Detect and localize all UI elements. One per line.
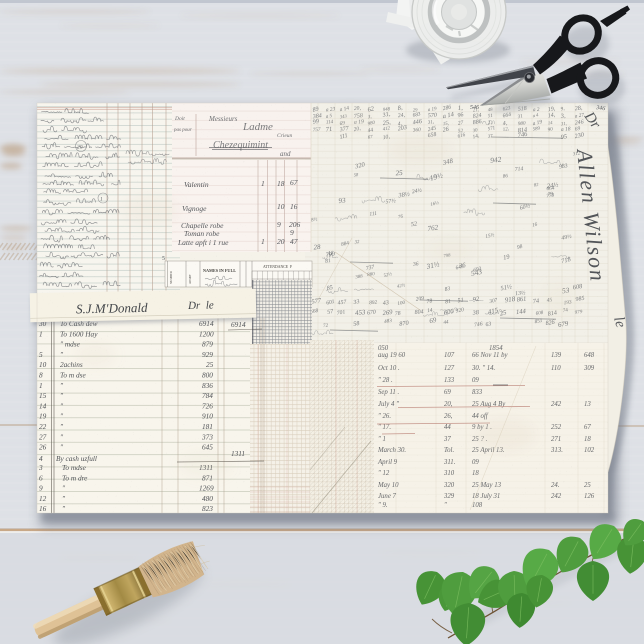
svg-text:Oct 10 .: Oct 10 . (378, 365, 400, 372)
svg-text:664: 664 (546, 185, 555, 192)
svg-text:and: and (280, 150, 291, 158)
svg-text:63: 63 (485, 321, 492, 328)
svg-text:9: 9 (290, 228, 294, 237)
svg-text:aug 19 60: aug 19 60 (378, 352, 406, 359)
svg-text:24,: 24, (398, 112, 406, 119)
svg-text:″ 28 .: ″ 28 . (378, 377, 393, 384)
svg-text:47: 47 (290, 237, 298, 246)
svg-text:″ 9.: ″ 9. (378, 502, 388, 509)
svg-text:To m dre: To m dre (62, 473, 88, 482)
svg-text:″ 12: ″ 12 (378, 470, 390, 477)
svg-text:313.: 313. (550, 447, 563, 454)
svg-text:a 2: a 2 (533, 107, 540, 114)
svg-text:3: 3 (38, 463, 43, 472)
svg-text:April 9: April 9 (377, 459, 398, 466)
svg-text:6: 6 (39, 473, 43, 482)
svg-text:25: 25 (395, 169, 403, 178)
svg-text:Sep 11 .: Sep 11 . (378, 389, 400, 396)
svg-text:329: 329 (443, 493, 455, 500)
svg-text:1269: 1269 (199, 484, 214, 493)
svg-text:44 off: 44 off (472, 413, 489, 420)
svg-text:1311: 1311 (231, 449, 245, 458)
svg-text:26: 26 (39, 443, 47, 452)
svg-text:To mdse: To mdse (62, 463, 87, 472)
svg-text:726: 726 (202, 401, 213, 410)
svg-text:18: 18 (277, 179, 285, 188)
svg-text:19: 19 (39, 412, 47, 421)
svg-text:Tol.: Tol. (444, 447, 454, 454)
svg-text:5: 5 (39, 350, 43, 359)
svg-text:577: 577 (311, 297, 322, 305)
svg-text:645: 645 (202, 443, 213, 452)
svg-text:20: 20 (77, 145, 83, 151)
svg-text:″ 17.: ″ 17. (378, 424, 391, 431)
svg-text:762: 762 (427, 223, 439, 232)
svg-text:51: 51 (488, 114, 493, 119)
svg-text:5: 5 (162, 256, 165, 262)
svg-text:Ladme: Ladme (242, 121, 273, 133)
svg-text:126: 126 (584, 493, 595, 500)
svg-text:95: 95 (560, 133, 567, 141)
svg-text:1: 1 (261, 179, 265, 188)
svg-text:27: 27 (39, 432, 47, 441)
svg-text:Messieurs: Messieurs (208, 115, 238, 123)
svg-text:″: ″ (444, 502, 447, 509)
svg-text:″ mdse: ″ mdse (60, 340, 81, 349)
svg-text:44: 44 (444, 424, 451, 431)
svg-text:12,: 12, (502, 127, 509, 133)
svg-text:26,: 26, (444, 413, 453, 420)
svg-text:870: 870 (399, 320, 410, 328)
svg-text:942: 942 (490, 155, 502, 165)
svg-text:1: 1 (100, 197, 103, 203)
svg-text:102: 102 (584, 447, 595, 454)
svg-text:Valentin: Valentin (184, 180, 209, 189)
svg-text:28,: 28, (574, 105, 583, 112)
svg-text:ATTENDANCE F: ATTENDANCE F (263, 265, 292, 269)
svg-text:9: 9 (277, 220, 281, 229)
svg-text:85: 85 (326, 285, 333, 292)
svg-text:16: 16 (39, 504, 47, 513)
svg-text:74: 74 (533, 297, 540, 305)
svg-text:July 4 ″: July 4 ″ (378, 401, 399, 408)
svg-text:8: 8 (39, 371, 43, 380)
svg-text:648: 648 (584, 352, 595, 359)
svg-text:24.: 24. (551, 482, 560, 489)
svg-text:929: 929 (202, 350, 213, 359)
svg-text:108: 108 (472, 502, 483, 509)
svg-text:310: 310 (443, 470, 455, 477)
svg-text:111: 111 (369, 211, 377, 218)
svg-text:28: 28 (313, 244, 321, 252)
svg-text:30. ″ 14.: 30. ″ 14. (471, 365, 496, 372)
svg-text:1: 1 (39, 381, 43, 390)
svg-text:16: 16 (290, 202, 298, 211)
svg-text:110: 110 (551, 365, 561, 372)
svg-text:S.J.M′Donald: S.J.M′Donald (76, 300, 148, 317)
svg-text:pas pour: pas pour (173, 128, 192, 133)
svg-text:31,: 31, (428, 119, 435, 126)
svg-text:181: 181 (202, 422, 213, 431)
svg-text:242: 242 (551, 401, 562, 408)
svg-text:To m dse: To m dse (60, 371, 86, 380)
svg-text:10: 10 (39, 360, 47, 369)
svg-text:714: 714 (515, 166, 524, 173)
svg-text:78: 78 (395, 311, 401, 318)
svg-text:15: 15 (39, 391, 47, 400)
svg-text:320: 320 (443, 482, 455, 489)
svg-text:1854: 1854 (489, 345, 503, 352)
svg-text:To 1600 Hay: To 1600 Hay (60, 329, 98, 338)
svg-text:May 10: May 10 (377, 482, 399, 489)
svg-text:836: 836 (202, 381, 213, 390)
svg-text:a 18: a 18 (561, 126, 571, 133)
svg-text:57½: 57½ (385, 197, 397, 205)
svg-text:570: 570 (428, 113, 437, 120)
svg-text:″ 26.: ″ 26. (378, 413, 391, 420)
svg-text:879: 879 (202, 340, 213, 349)
svg-text:252: 252 (551, 424, 562, 431)
svg-text:NAMES IN FULL: NAMES IN FULL (203, 268, 236, 273)
svg-text:373: 373 (201, 432, 213, 441)
svg-text:892: 892 (369, 299, 378, 306)
svg-text:Dr le: Dr le (187, 299, 214, 312)
svg-text:979: 979 (574, 309, 583, 316)
svg-text:309: 309 (583, 365, 595, 372)
svg-text:861: 861 (516, 295, 526, 303)
svg-text:1200: 1200 (199, 329, 214, 338)
svg-text:″ 1: ″ 1 (378, 436, 386, 443)
svg-text:43: 43 (383, 300, 390, 307)
svg-text:09: 09 (472, 377, 479, 384)
svg-text:25: 25 (584, 482, 591, 489)
svg-text:20: 20 (277, 237, 285, 246)
svg-text:242: 242 (551, 493, 562, 500)
svg-text:757: 757 (313, 127, 322, 134)
svg-text:March 30.: March 30. (377, 447, 406, 454)
svg-text:271: 271 (551, 436, 561, 443)
svg-text:269: 269 (382, 309, 393, 317)
svg-text:107: 107 (444, 352, 455, 359)
svg-text:209: 209 (415, 296, 424, 303)
svg-text:Toman robe: Toman robe (184, 229, 220, 238)
svg-text:69: 69 (444, 389, 451, 396)
svg-text:670: 670 (367, 310, 377, 317)
svg-text:14: 14 (427, 308, 433, 314)
svg-text:12: 12 (39, 494, 47, 503)
svg-text:By cash uzfull: By cash uzfull (56, 454, 97, 463)
svg-text:823: 823 (202, 504, 213, 513)
svg-text:25 May 13: 25 May 13 (472, 482, 502, 489)
svg-text:ADMIT: ADMIT (188, 274, 192, 284)
svg-text:37: 37 (443, 436, 451, 443)
svg-text:66 Nov 11 by: 66 Nov 11 by (472, 352, 509, 359)
svg-text:4: 4 (39, 454, 43, 463)
svg-text:52: 52 (411, 221, 418, 228)
svg-text:833: 833 (472, 389, 483, 396)
svg-text:18: 18 (584, 436, 591, 443)
svg-text:910: 910 (202, 412, 213, 421)
svg-text:13: 13 (584, 401, 591, 408)
svg-text:127: 127 (444, 365, 455, 372)
svg-text:608: 608 (535, 310, 544, 317)
svg-text:June 7: June 7 (378, 493, 397, 500)
svg-text:139: 139 (551, 352, 562, 359)
svg-text:388: 388 (355, 274, 363, 280)
svg-text:800: 800 (202, 371, 213, 380)
svg-text:784: 784 (202, 391, 213, 400)
svg-text:93: 93 (338, 196, 346, 205)
svg-text:NUMBER: NUMBER (169, 271, 173, 284)
svg-text:360: 360 (413, 127, 422, 134)
svg-text:Vignoge: Vignoge (182, 204, 207, 213)
svg-text:25: 25 (206, 360, 214, 369)
svg-text:67: 67 (584, 424, 591, 431)
svg-text:1: 1 (39, 329, 43, 338)
svg-text:18: 18 (472, 470, 479, 477)
svg-text:311.: 311. (443, 459, 456, 466)
svg-text:Latte apft i 1 rue: Latte apft i 1 rue (177, 238, 229, 247)
svg-text:09: 09 (472, 459, 479, 466)
svg-text:Doit: Doit (174, 116, 185, 122)
svg-text:67: 67 (290, 178, 298, 187)
svg-text:36: 36 (412, 261, 420, 268)
svg-text:144: 144 (516, 308, 527, 316)
svg-text:050: 050 (378, 345, 389, 352)
svg-text:10: 10 (277, 202, 285, 211)
svg-text:Crieun: Crieun (277, 133, 293, 139)
svg-text:453: 453 (355, 309, 366, 317)
svg-text:6914: 6914 (231, 320, 246, 329)
svg-text:483: 483 (384, 317, 393, 325)
svg-text:1: 1 (261, 237, 265, 246)
svg-text:71: 71 (325, 126, 332, 134)
svg-text:133: 133 (444, 377, 455, 384)
svg-text:480: 480 (202, 494, 213, 503)
svg-text:14: 14 (39, 401, 47, 410)
svg-text:27: 27 (458, 120, 464, 127)
svg-text:546: 546 (470, 104, 479, 111)
svg-text:9: 9 (39, 484, 43, 493)
svg-text:22: 22 (39, 422, 47, 431)
